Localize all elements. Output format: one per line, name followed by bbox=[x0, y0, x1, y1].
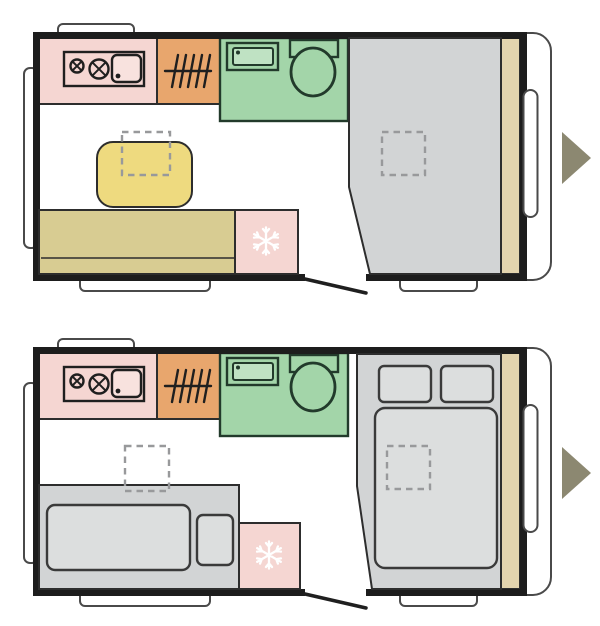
pillow-left bbox=[379, 366, 431, 402]
seat-cushion bbox=[197, 515, 233, 565]
floorplan-night bbox=[24, 339, 591, 608]
bed-area bbox=[349, 38, 501, 274]
duvet bbox=[375, 408, 497, 568]
pillow-right bbox=[441, 366, 493, 402]
floorplan-stage bbox=[0, 0, 600, 626]
single-bed-mattress bbox=[47, 505, 190, 570]
bench-seat bbox=[39, 210, 235, 274]
caravan-floorplans-image bbox=[0, 0, 600, 626]
floorplan-day bbox=[24, 24, 591, 293]
single-bed-bedding bbox=[47, 505, 233, 570]
